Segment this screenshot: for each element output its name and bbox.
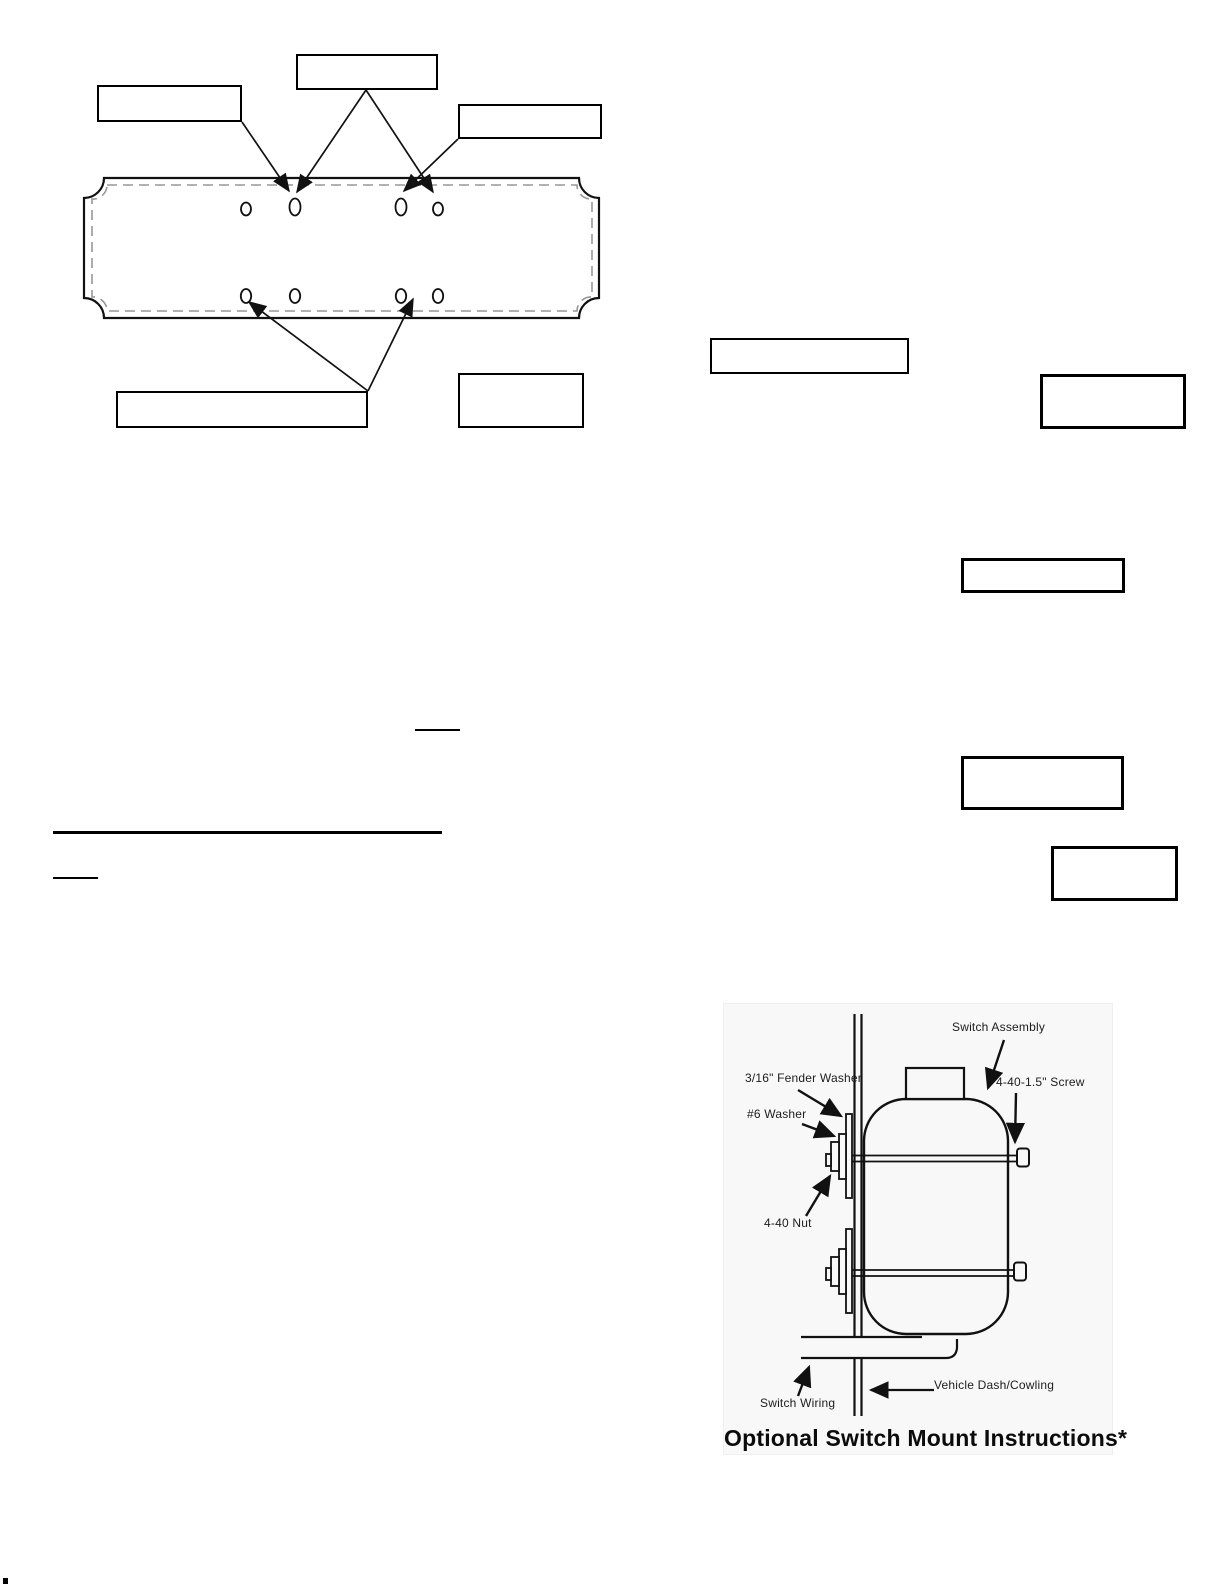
fender-washer [846,1114,852,1198]
scan-corner-mark [3,1578,8,1584]
plate-hole [396,199,407,216]
callout-box-bottom-right [458,373,584,428]
plate-hole [433,203,443,216]
callout-box-bottom-left [116,391,368,428]
blank-underline-1 [415,729,460,731]
label-screw: 4-40-1.5" Screw [996,1075,1085,1089]
switch-mount-diagram: Switch Assembly 3/16" Fender Washer #6 W… [723,1003,1113,1455]
switch-body [864,1099,1008,1334]
nut [831,1142,839,1171]
leader-arrow-screw [1015,1093,1016,1142]
label-switch-assembly: Switch Assembly [952,1020,1045,1034]
label-fender-washer: 3/16" Fender Washer [745,1071,862,1085]
screw-tail [826,1154,831,1166]
screw-head [1014,1263,1026,1281]
label-switch-wiring: Switch Wiring [760,1396,835,1410]
plate-hole [396,289,406,303]
number6-washer [839,1249,846,1294]
screw-head [1017,1149,1029,1167]
screw-tail [826,1268,831,1280]
plate-hole [433,289,443,303]
side-box-4 [961,756,1124,810]
callout-box-top-left [97,85,242,122]
callout-arrow [366,90,433,192]
plate-hole [241,289,251,303]
side-box-1 [710,338,909,374]
label-nut: 4-40 Nut [764,1216,812,1230]
callout-box-top-center [296,54,438,90]
side-box-5 [1051,846,1178,901]
callout-box-top-right [458,104,602,139]
switch-connector [906,1068,964,1099]
number6-washer [839,1134,846,1179]
fender-washer [846,1229,852,1313]
leader-arrow-number6-washer [802,1124,834,1136]
plate-hole [290,199,301,216]
blank-underline-2 [53,831,442,834]
plate-hole [241,203,251,216]
nut [831,1257,839,1286]
label-number6-washer: #6 Washer [747,1107,806,1121]
blank-underline-3 [53,877,98,879]
diagram-caption: Optional Switch Mount Instructions* [724,1425,1114,1452]
side-box-3 [961,558,1125,593]
plate-hole [290,289,300,303]
switch-wiring-duct [801,1337,957,1358]
leader-arrow-switch-wiring [798,1367,809,1396]
document-page: Switch Assembly 3/16" Fender Washer #6 W… [0,0,1225,1585]
plate-outline [84,178,599,318]
side-box-2 [1040,374,1186,429]
callout-arrow [297,90,366,192]
label-dash-cowling: Vehicle Dash/Cowling [934,1378,1054,1392]
leader-arrow-nut [806,1176,830,1216]
